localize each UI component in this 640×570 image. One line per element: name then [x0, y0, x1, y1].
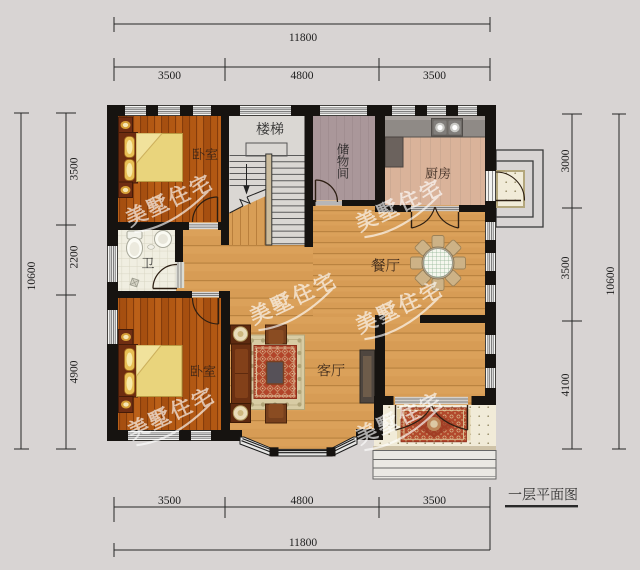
svg-text:4800: 4800	[291, 495, 314, 507]
svg-text:11800: 11800	[289, 32, 318, 44]
svg-text:4100: 4100	[560, 373, 572, 396]
svg-text:3500: 3500	[158, 495, 181, 507]
svg-text:3500: 3500	[423, 495, 446, 507]
svg-text:2200: 2200	[69, 245, 81, 268]
svg-text:10600: 10600	[26, 261, 38, 290]
svg-text:3500: 3500	[69, 157, 81, 180]
svg-text:3000: 3000	[560, 149, 572, 172]
svg-text:3500: 3500	[158, 70, 181, 82]
svg-text:3500: 3500	[560, 256, 572, 279]
svg-text:3500: 3500	[423, 70, 446, 82]
svg-text:4800: 4800	[291, 70, 314, 82]
svg-text:11800: 11800	[289, 537, 318, 549]
svg-text:4900: 4900	[69, 360, 81, 383]
svg-text:10600: 10600	[605, 266, 617, 295]
